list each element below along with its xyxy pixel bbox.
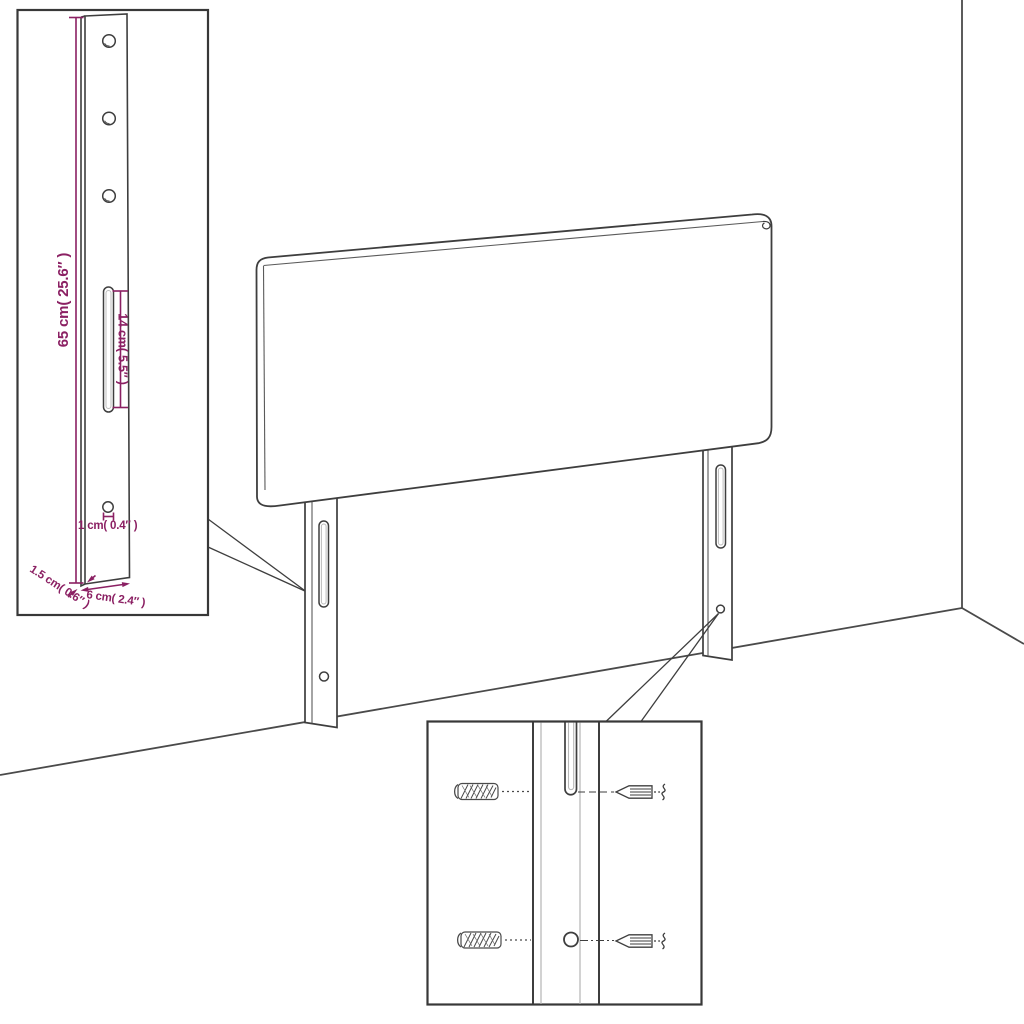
- mounting-detail-inset: [428, 722, 702, 1005]
- bracket-hole-2: [103, 112, 116, 125]
- right-leg-slot: [716, 465, 726, 548]
- left-inset-leader-lines: [208, 519, 306, 592]
- left-leg-hole: [320, 672, 329, 681]
- headboard-panel: [257, 214, 772, 506]
- headboard-outline: [257, 214, 772, 506]
- bracket-slot: [104, 287, 114, 412]
- wall-plug-icon: [458, 932, 501, 948]
- bracket-hole-1: [103, 35, 116, 48]
- hole-dimension-label: 1 cm( 0.4″ ): [78, 520, 138, 532]
- height-dimension-label: 65 cm( 25.6″ ): [55, 253, 72, 348]
- diagram-canvas: 65 cm( 25.6″ ) 14 cm( 5.5″ ) 1 cm( 0.4″ …: [0, 0, 1024, 1024]
- headboard-right-leg: [703, 440, 732, 660]
- zoomed-mounting-hole: [564, 933, 578, 947]
- headboard-left-leg: [305, 490, 337, 728]
- floor-line-right: [962, 608, 1024, 644]
- right-leg-hole: [717, 605, 725, 613]
- bracket-hole-3: [103, 190, 116, 203]
- bracket-bottom-hole: [103, 502, 113, 512]
- headboard-dimension-diagram: 65 cm( 25.6″ ) 14 cm( 5.5″ ) 1 cm( 0.4″ …: [0, 0, 1024, 1024]
- slot-dimension-label: 14 cm( 5.5″ ): [116, 313, 130, 385]
- leg-detail-inset: 65 cm( 25.6″ ) 14 cm( 5.5″ ) 1 cm( 0.4″ …: [18, 10, 209, 615]
- wall-plug-icon: [455, 784, 498, 800]
- left-leg-slot: [319, 521, 329, 607]
- bracket-drawing: [81, 14, 130, 586]
